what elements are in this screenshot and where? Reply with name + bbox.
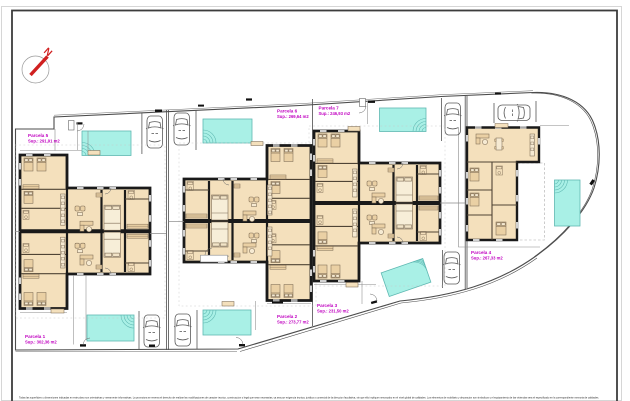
- svg-text:Sup.: 231,50 m2: Sup.: 231,50 m2: [317, 309, 349, 314]
- svg-text:Todas las superficies y dimens: Todas las superficies y dimensiones indi…: [19, 396, 599, 400]
- svg-text:Parcela 1: Parcela 1: [25, 334, 46, 339]
- svg-text:Sup.: 302,36 m2: Sup.: 302,36 m2: [25, 340, 57, 345]
- svg-text:Sup.: 267,33 m2: Sup.: 267,33 m2: [471, 256, 503, 261]
- svg-text:Parcela 6: Parcela 6: [277, 109, 298, 114]
- svg-text:Parcela 5: Parcela 5: [28, 133, 49, 138]
- svg-text:Sup.: 246,93 m2: Sup.: 246,93 m2: [319, 111, 351, 116]
- svg-text:Sup.: 269,64 m2: Sup.: 269,64 m2: [277, 114, 309, 119]
- svg-text:Parcela 7: Parcela 7: [319, 106, 340, 111]
- svg-text:Parcela 3: Parcela 3: [317, 303, 338, 308]
- svg-text:Sup.: 291,91 m2: Sup.: 291,91 m2: [28, 139, 60, 144]
- svg-text:Sup.: 273,77 m2: Sup.: 273,77 m2: [277, 320, 309, 325]
- svg-text:Parcela 2: Parcela 2: [277, 314, 298, 319]
- svg-text:Parcela 4: Parcela 4: [471, 250, 492, 255]
